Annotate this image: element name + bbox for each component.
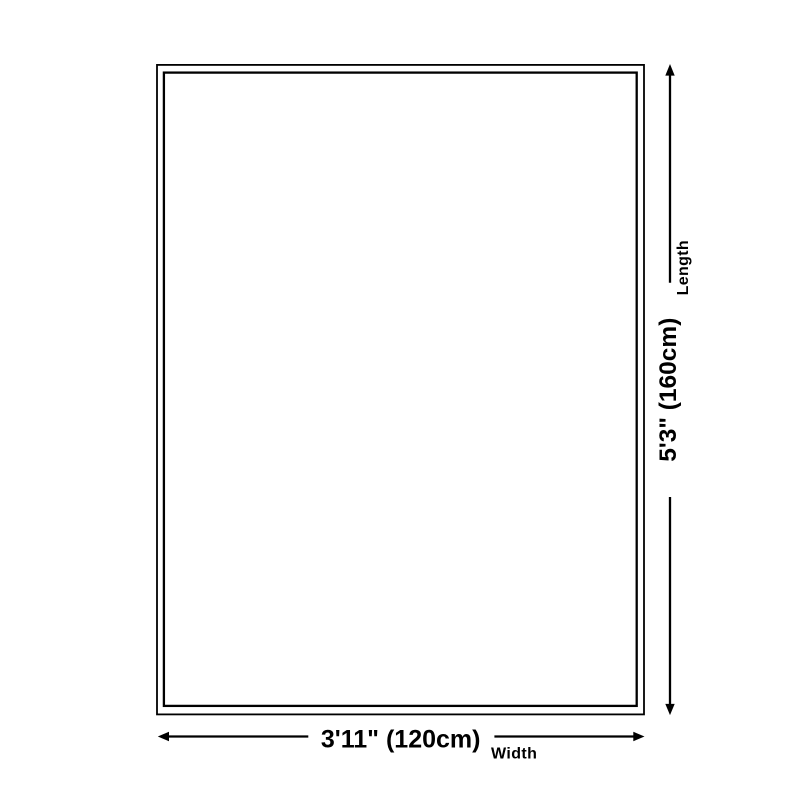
- svg-text:Width: Width: [491, 745, 537, 762]
- svg-text:5'3" (160cm): 5'3" (160cm): [655, 318, 682, 462]
- svg-text:3'11" (120cm): 3'11" (120cm): [321, 726, 481, 754]
- svg-text:Length: Length: [675, 240, 692, 295]
